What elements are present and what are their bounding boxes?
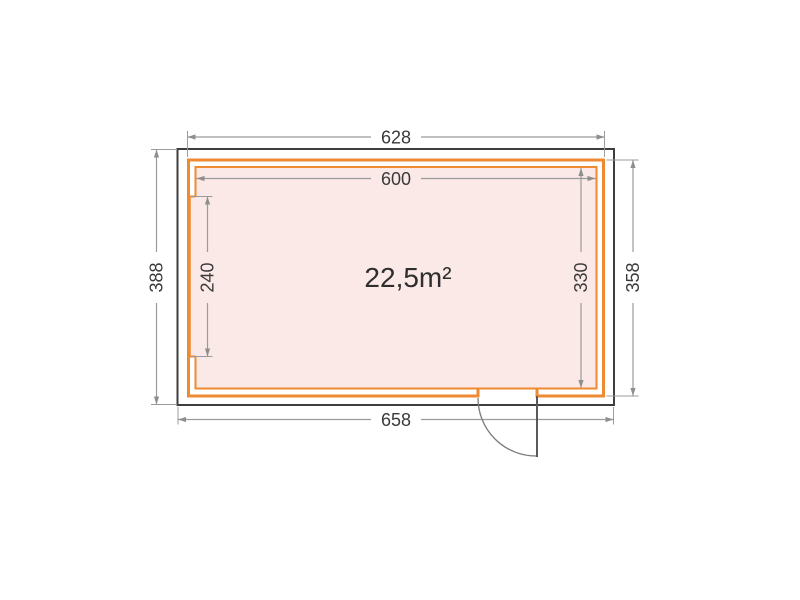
- dimension-label-left-inner: 240: [198, 262, 218, 292]
- dimension-label-right-inner: 330: [571, 262, 591, 292]
- room-area-label: 22,5m²: [364, 262, 451, 293]
- door-swing-arc: [478, 398, 536, 456]
- dimension-label-left: 388: [147, 262, 167, 292]
- floor-plan-page: 628 600 658 388: [0, 0, 800, 600]
- floor-plan-drawing: 628 600 658 388: [0, 0, 800, 600]
- dimension-label-bottom: 658: [381, 410, 411, 430]
- dimension-left-388: 388: [147, 150, 178, 405]
- dimension-top-628: 628: [188, 128, 605, 158]
- dimension-label-inner-top: 600: [381, 169, 411, 189]
- dimension-label-top: 628: [381, 128, 411, 148]
- dimension-right-358: 358: [607, 160, 644, 396]
- dimension-label-right: 358: [623, 262, 643, 292]
- dimension-bottom-658: 658: [178, 407, 614, 430]
